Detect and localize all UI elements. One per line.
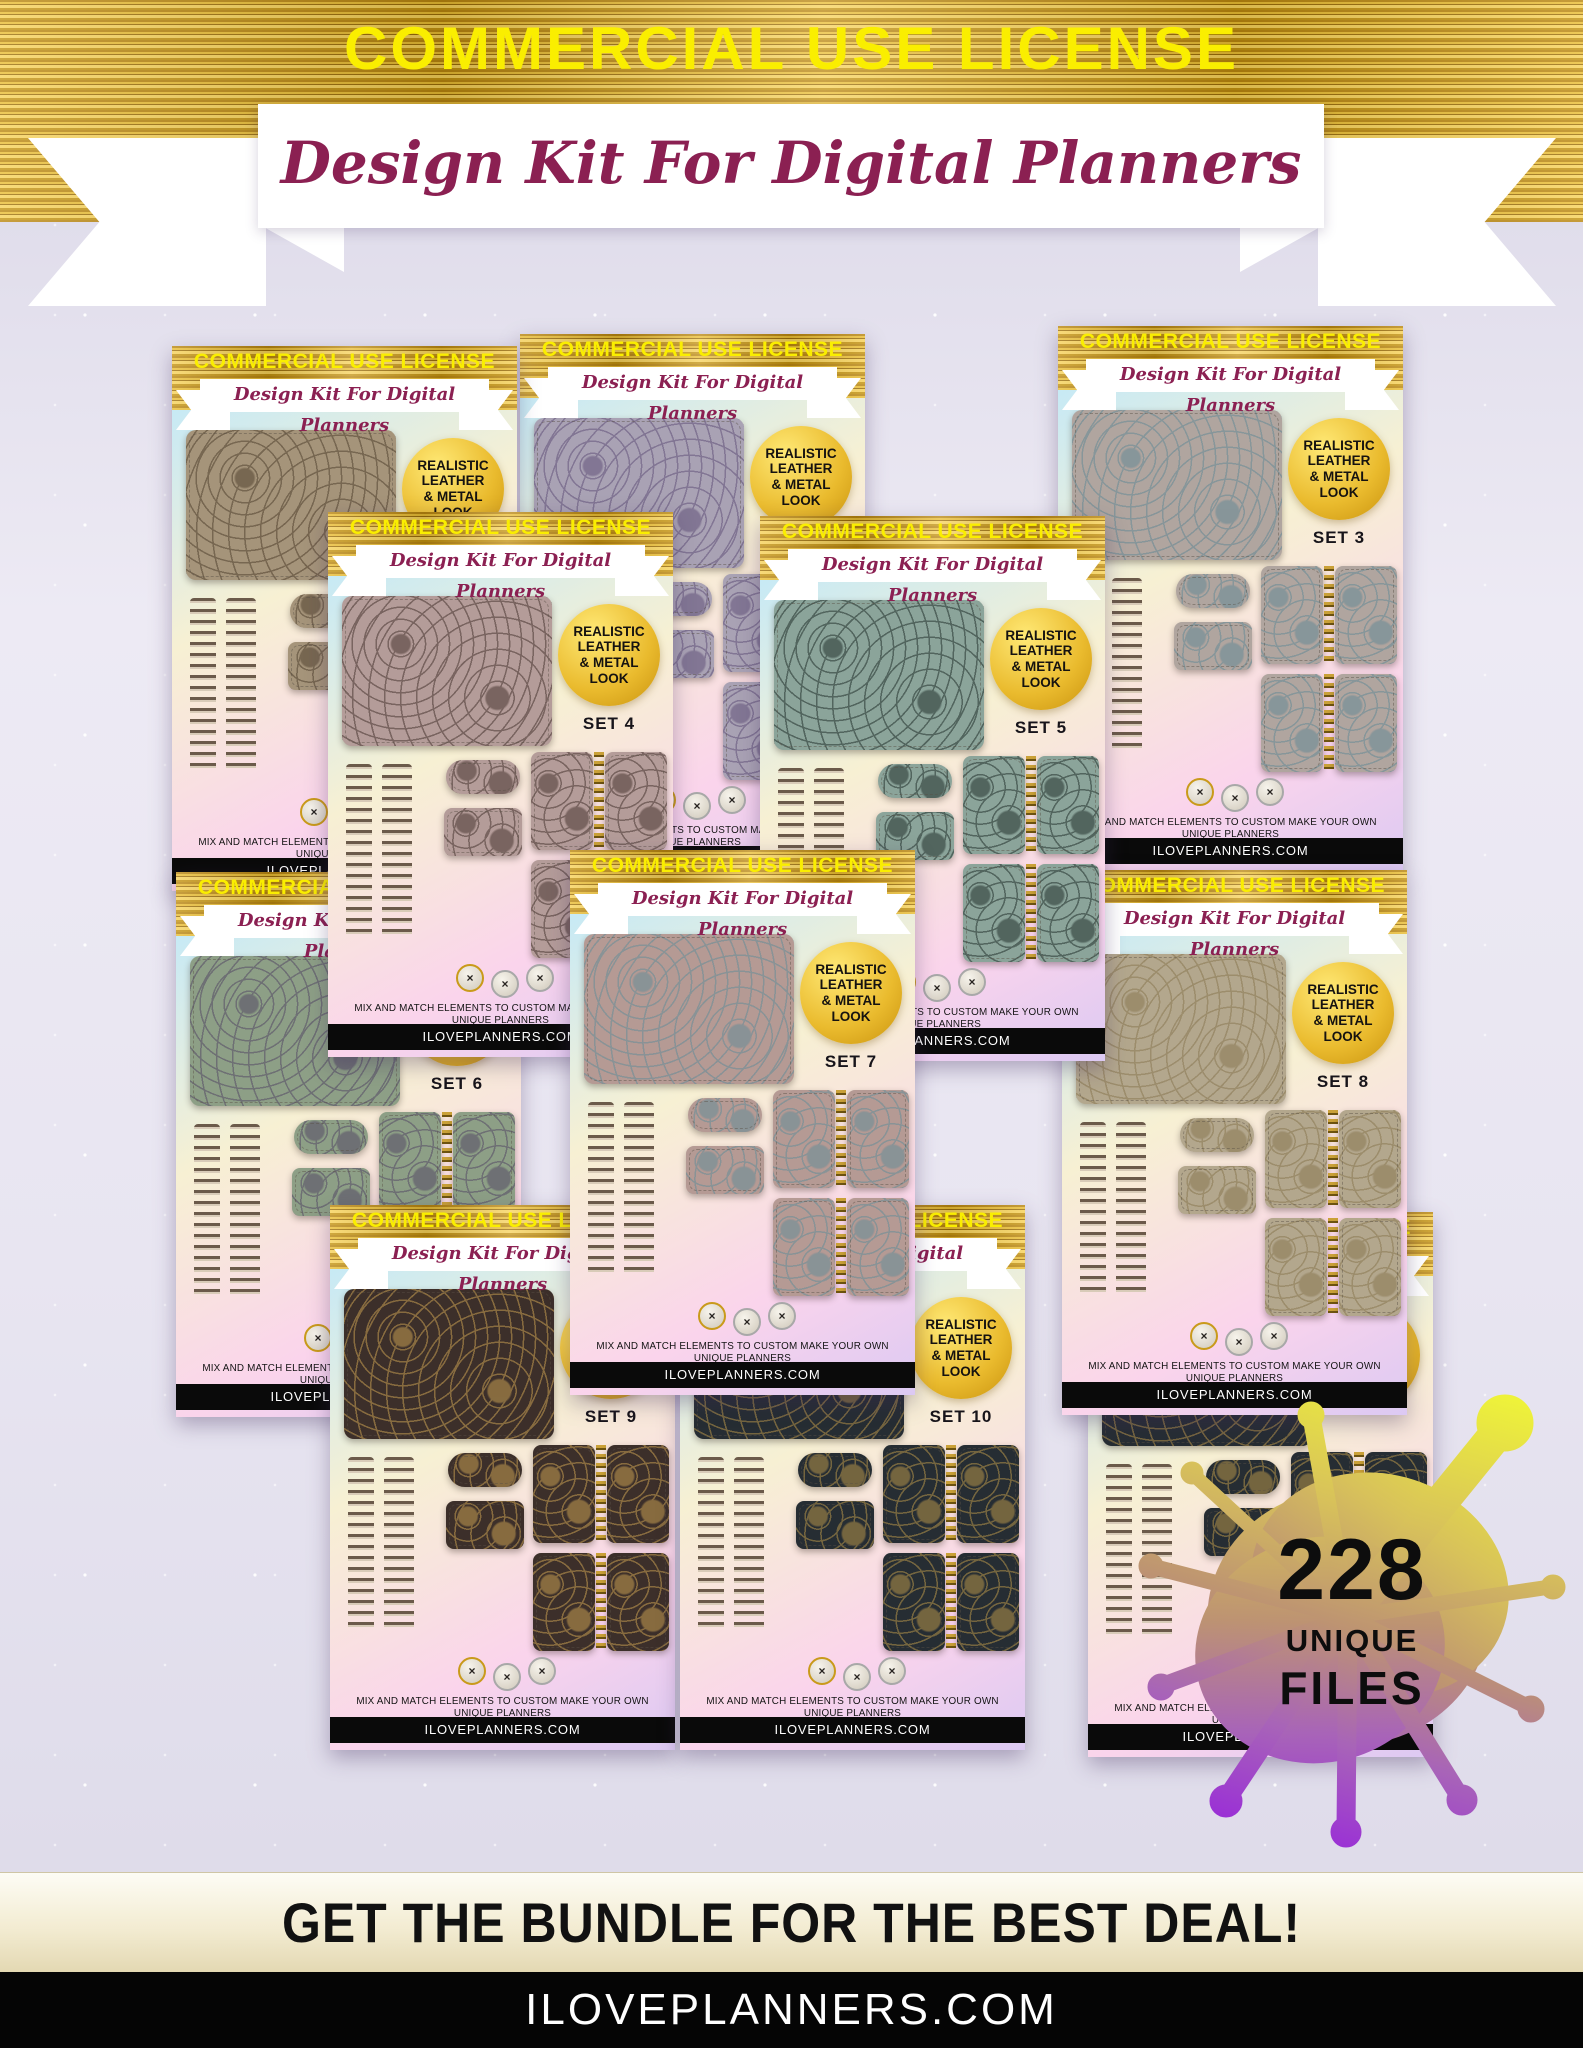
snap-button: × xyxy=(698,1302,726,1330)
snap-button: × xyxy=(808,1657,836,1685)
spiral-binding xyxy=(1026,864,1036,962)
snap-button: × xyxy=(456,964,484,992)
spiral-binding xyxy=(836,1198,846,1296)
leather-texture-swatch xyxy=(774,600,984,750)
spiral-pins-column xyxy=(384,1457,414,1632)
planner-cover xyxy=(1339,1218,1401,1316)
card-website: ILOVEPLANNERS.COM xyxy=(570,1362,915,1388)
realistic-leather-badge: REALISTIC LEATHER & METAL LOOK xyxy=(750,426,852,528)
spiral-pins-column xyxy=(230,1124,260,1299)
badge-line: REALISTIC xyxy=(573,624,644,640)
set-number-label: SET 6 xyxy=(400,1074,514,1094)
leather-texture-swatch xyxy=(344,1289,554,1439)
planner-cover xyxy=(847,1198,909,1296)
card-website: ILOVEPLANNERS.COM xyxy=(330,1717,675,1743)
card-footer-bar: ILOVEPLANNERS.COM xyxy=(330,1717,675,1743)
badge-line: LOOK xyxy=(1320,485,1359,501)
set-number-label: SET 5 xyxy=(984,718,1098,738)
card-ribbon-title: Design Kit For Digital Planners xyxy=(788,549,1077,582)
badge-line: & METAL xyxy=(932,1348,991,1364)
planner-cover xyxy=(533,1553,595,1651)
spiral-binding xyxy=(596,1553,606,1651)
splat-count: 228 xyxy=(1222,1527,1482,1613)
splat-unique-label: UNIQUE xyxy=(1222,1623,1482,1659)
planner-cover xyxy=(773,1198,835,1296)
badge-line: & METAL xyxy=(1310,469,1369,485)
spiral-binding xyxy=(836,1090,846,1188)
badge-line: LOOK xyxy=(942,1364,981,1380)
badge-line: & METAL xyxy=(424,489,483,505)
snap-button: × xyxy=(526,964,554,992)
snap-button: × xyxy=(958,968,986,996)
planner-cover xyxy=(605,752,667,850)
spiral-pins-column xyxy=(734,1457,764,1632)
header-title: COMMERCIAL USE LICENSE xyxy=(0,14,1583,83)
spiral-pins-column xyxy=(624,1102,654,1277)
spiral-binding xyxy=(1328,1110,1338,1208)
page-background: { "header": { "title": "COMMERCIAL USE L… xyxy=(0,0,1583,2048)
snap-button: × xyxy=(843,1663,871,1691)
badge-line: LOOK xyxy=(782,493,821,509)
splat-graphic: 228 UNIQUE FILES xyxy=(1130,1385,1575,1850)
spiral-pins-column xyxy=(1112,578,1142,753)
spiral-pins-column xyxy=(1116,1122,1146,1297)
card-caption: MIX AND MATCH ELEMENTS TO CUSTOM MAKE YO… xyxy=(1078,1360,1391,1384)
planner-cover xyxy=(453,1112,515,1210)
card-website: ILOVEPLANNERS.COM xyxy=(1058,838,1403,864)
planner-cover xyxy=(1265,1218,1327,1316)
card-caption: MIX AND MATCH ELEMENTS TO CUSTOM MAKE YO… xyxy=(586,1340,899,1364)
badge-line: & METAL xyxy=(1012,659,1071,675)
badge-line: & METAL xyxy=(822,993,881,1009)
planner-cover xyxy=(883,1553,945,1651)
card-banner-title: COMMERCIAL USE LICENSE xyxy=(172,350,517,374)
footer-website-bar: ILOVEPLANNERS.COM xyxy=(0,1972,1583,2048)
ribbon-tail-left xyxy=(28,138,266,306)
planner-cover xyxy=(607,1553,669,1651)
spiral-binding xyxy=(1324,674,1334,772)
spiral-binding xyxy=(594,752,604,850)
snap-button: × xyxy=(1256,778,1284,806)
spiral-pins-column xyxy=(382,764,412,939)
spiral-pins-column xyxy=(1106,1464,1132,1639)
planner-cover xyxy=(1335,566,1397,664)
spiral-binding xyxy=(596,1445,606,1543)
ribbon-fold-left xyxy=(262,226,344,272)
snap-button: × xyxy=(878,1657,906,1685)
badge-line: LEATHER xyxy=(1010,643,1073,659)
planner-cover xyxy=(1265,1110,1327,1208)
badge-line: LOOK xyxy=(590,671,629,687)
planner-tab xyxy=(446,760,520,794)
spiral-binding xyxy=(1328,1218,1338,1316)
spiral-binding xyxy=(1026,756,1036,854)
badge-line: LOOK xyxy=(1022,675,1061,691)
badge-line: LEATHER xyxy=(578,639,641,655)
card-banner-title: COMMERCIAL USE LICENSE xyxy=(760,520,1105,544)
spiral-binding xyxy=(442,1112,452,1210)
ribbon-tail-right xyxy=(1318,138,1556,306)
set-number-label: SET 10 xyxy=(904,1407,1018,1427)
snap-button: × xyxy=(683,792,711,820)
spiral-pins-column xyxy=(348,1457,374,1632)
badge-line: REALISTIC xyxy=(815,962,886,978)
spiral-pins-column xyxy=(698,1457,724,1632)
planner-tab xyxy=(688,1098,762,1132)
snap-button: × xyxy=(733,1308,761,1336)
splat-text-block: 228 UNIQUE FILES xyxy=(1222,1527,1482,1715)
badge-line: REALISTIC xyxy=(1303,438,1374,454)
spiral-pins-column xyxy=(190,598,216,773)
planner-cover xyxy=(1037,756,1099,854)
planner-tab xyxy=(1178,1166,1256,1214)
card-ribbon-title: Design Kit For Digital Planners xyxy=(1086,359,1375,392)
preview-card-set-8: COMMERCIAL USE LICENSE Design Kit For Di… xyxy=(1062,870,1407,1415)
badge-line: & METAL xyxy=(580,655,639,671)
preview-card-set-7: COMMERCIAL USE LICENSE Design Kit For Di… xyxy=(570,850,915,1395)
badge-line: & METAL xyxy=(1314,1013,1373,1029)
planner-cover xyxy=(1261,566,1323,664)
card-website: ILOVEPLANNERS.COM xyxy=(680,1717,1025,1743)
card-footer-bar: ILOVEPLANNERS.COM xyxy=(1058,838,1403,864)
card-banner-title: COMMERCIAL USE LICENSE xyxy=(1062,874,1407,898)
card-ribbon-title: Design Kit For Digital Planners xyxy=(200,379,489,412)
planner-tab xyxy=(1176,574,1250,608)
snap-button: × xyxy=(1225,1328,1253,1356)
snap-button: × xyxy=(1190,1322,1218,1350)
badge-line: REALISTIC xyxy=(1005,628,1076,644)
set-number-label: SET 9 xyxy=(554,1407,668,1427)
planner-cover xyxy=(531,752,593,850)
spiral-pins-column xyxy=(194,1124,220,1299)
snap-button: × xyxy=(768,1302,796,1330)
badge-line: LEATHER xyxy=(820,977,883,993)
card-ribbon-title: Design Kit For Digital Planners xyxy=(356,545,645,578)
planner-cover xyxy=(963,756,1025,854)
leather-texture-swatch xyxy=(342,596,552,746)
planner-tab xyxy=(1174,622,1252,670)
header-subtitle: Design Kit For Digital Planners xyxy=(258,104,1324,228)
preview-card-set-3: COMMERCIAL USE LICENSE Design Kit For Di… xyxy=(1058,326,1403,871)
set-number-label: SET 8 xyxy=(1286,1072,1400,1092)
splat-files-label: FILES xyxy=(1222,1661,1482,1715)
leather-texture-swatch xyxy=(1076,954,1286,1104)
badge-line: LOOK xyxy=(1324,1029,1363,1045)
footer-tagline-band: GET THE BUNDLE FOR THE BEST DEAL! xyxy=(0,1872,1583,1973)
badge-line: LEATHER xyxy=(1312,997,1375,1013)
card-ribbon-title: Design Kit For Digital Planners xyxy=(598,883,887,916)
badge-line: LOOK xyxy=(832,1009,871,1025)
planner-tab xyxy=(294,1120,368,1154)
realistic-leather-badge: REALISTIC LEATHER & METAL LOOK xyxy=(910,1297,1012,1399)
planner-tab xyxy=(1180,1118,1254,1152)
badge-line: LEATHER xyxy=(930,1332,993,1348)
planner-tab xyxy=(444,808,522,856)
card-banner-title: COMMERCIAL USE LICENSE xyxy=(1058,330,1403,354)
snap-button: × xyxy=(458,1657,486,1685)
card-footer-bar: ILOVEPLANNERS.COM xyxy=(680,1717,1025,1743)
badge-line: & METAL xyxy=(772,477,831,493)
snap-button: × xyxy=(1221,784,1249,812)
card-caption: MIX AND MATCH ELEMENTS TO CUSTOM MAKE YO… xyxy=(346,1695,659,1719)
snap-button: × xyxy=(923,974,951,1002)
badge-line: LEATHER xyxy=(1308,453,1371,469)
spiral-pins-column xyxy=(346,764,372,939)
planner-cover xyxy=(1261,674,1323,772)
spiral-pins-column xyxy=(226,598,256,773)
card-banner-title: COMMERCIAL USE LICENSE xyxy=(520,338,865,362)
planner-cover xyxy=(607,1445,669,1543)
card-ribbon-title: Design Kit For Digital Planners xyxy=(548,367,837,400)
card-banner-title: COMMERCIAL USE LICENSE xyxy=(328,516,673,540)
snap-button: × xyxy=(493,1663,521,1691)
spiral-binding xyxy=(946,1553,956,1651)
card-banner-title: COMMERCIAL USE LICENSE xyxy=(570,854,915,878)
snap-button: × xyxy=(1186,778,1214,806)
planner-tab xyxy=(878,764,952,798)
set-number-label: SET 4 xyxy=(552,714,666,734)
card-caption: MIX AND MATCH ELEMENTS TO CUSTOM MAKE YO… xyxy=(1074,816,1387,840)
card-ribbon-title: Design Kit For Digital Planners xyxy=(1090,903,1379,936)
badge-line: REALISTIC xyxy=(417,458,488,474)
planner-cover xyxy=(1037,864,1099,962)
planner-cover xyxy=(957,1553,1019,1651)
planner-tab xyxy=(686,1146,764,1194)
spiral-pins-column xyxy=(1080,1122,1106,1297)
snap-button: × xyxy=(528,1657,556,1685)
badge-line: LEATHER xyxy=(770,461,833,477)
footer-tagline: GET THE BUNDLE FOR THE BEST DEAL! xyxy=(0,1867,1583,1979)
card-footer-bar: ILOVEPLANNERS.COM xyxy=(570,1362,915,1388)
planner-cover xyxy=(883,1445,945,1543)
ribbon-fold-right xyxy=(1240,226,1322,272)
snap-button: × xyxy=(491,970,519,998)
realistic-leather-badge: REALISTIC LEATHER & METAL LOOK xyxy=(800,942,902,1044)
snap-button: × xyxy=(718,786,746,814)
snap-button: × xyxy=(304,1324,332,1352)
planner-tab xyxy=(446,1501,524,1549)
planner-tab xyxy=(796,1501,874,1549)
spiral-pins-column xyxy=(588,1102,614,1277)
badge-line: REALISTIC xyxy=(925,1317,996,1333)
realistic-leather-badge: REALISTIC LEATHER & METAL LOOK xyxy=(1288,418,1390,520)
planner-cover xyxy=(957,1445,1019,1543)
planner-cover xyxy=(773,1090,835,1188)
snap-button: × xyxy=(1260,1322,1288,1350)
planner-cover xyxy=(1335,674,1397,772)
realistic-leather-badge: REALISTIC LEATHER & METAL LOOK xyxy=(1292,962,1394,1064)
spiral-binding xyxy=(1324,566,1334,664)
planner-cover xyxy=(847,1090,909,1188)
badge-line: LEATHER xyxy=(422,473,485,489)
realistic-leather-badge: REALISTIC LEATHER & METAL LOOK xyxy=(558,604,660,706)
planner-tab xyxy=(448,1453,522,1487)
set-number-label: SET 3 xyxy=(1282,528,1396,548)
badge-line: REALISTIC xyxy=(765,446,836,462)
snap-button: × xyxy=(300,798,328,826)
leather-texture-swatch xyxy=(584,934,794,1084)
footer-website: ILOVEPLANNERS.COM xyxy=(0,1972,1583,2048)
realistic-leather-badge: REALISTIC LEATHER & METAL LOOK xyxy=(990,608,1092,710)
planner-cover xyxy=(379,1112,441,1210)
planner-cover xyxy=(533,1445,595,1543)
planner-tab xyxy=(798,1453,872,1487)
spiral-binding xyxy=(946,1445,956,1543)
badge-line: REALISTIC xyxy=(1307,982,1378,998)
card-caption: MIX AND MATCH ELEMENTS TO CUSTOM MAKE YO… xyxy=(696,1695,1009,1719)
set-number-label: SET 7 xyxy=(794,1052,908,1072)
planner-cover xyxy=(963,864,1025,962)
planner-cover xyxy=(1339,1110,1401,1208)
